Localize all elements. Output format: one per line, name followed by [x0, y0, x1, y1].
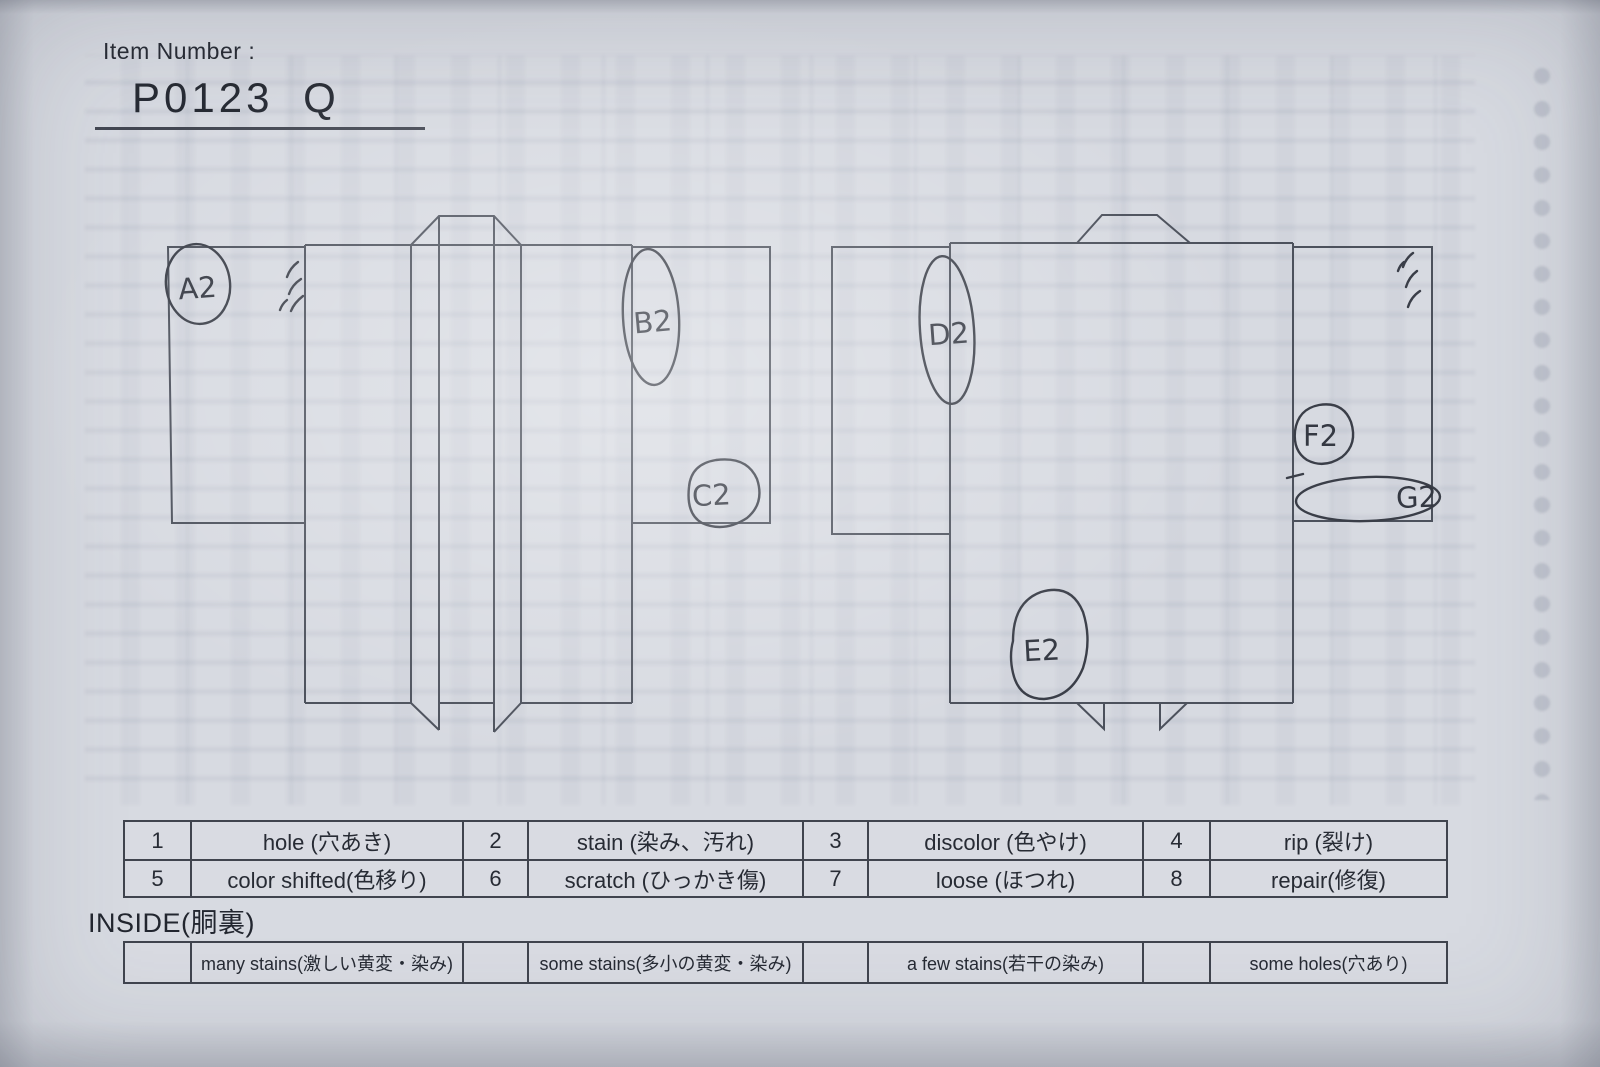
legend-label-cell: repair(修復) — [1209, 859, 1446, 896]
inside-check-cell — [802, 943, 867, 982]
inside-label-cell: some stains(多小の黄変・染み) — [527, 943, 802, 982]
annotation-c2-label: C2 — [691, 477, 731, 513]
legend-label-cell: color shifted(色移り) — [190, 859, 462, 896]
back-annotation-F2: F2 — [1287, 404, 1353, 478]
legend-label-cell: hole (穴あき) — [190, 822, 462, 859]
legend-code-cell: 2 — [462, 822, 527, 859]
annotation-g2-label: G2 — [1395, 480, 1437, 515]
legend-code-cell: 6 — [462, 859, 527, 896]
inside-section-heading: INSIDE(胴裏) — [88, 901, 255, 940]
legend-code-cell: 7 — [802, 859, 867, 896]
legend-code-cell: 1 — [125, 822, 190, 859]
defect-legend-table: 1 hole (穴あき) 2 stain (染み、汚れ) 3 discolor … — [123, 820, 1448, 898]
annotation-e2-label: E2 — [1022, 632, 1061, 668]
scanned-condition-sheet: Item Number : P0123 Q A2 B2 C2 — [0, 0, 1600, 1067]
legend-label-cell: rip (裂け) — [1209, 822, 1446, 859]
back-annotation-E2: E2 — [1011, 590, 1088, 699]
back-annotation-D2: D2 — [915, 254, 979, 405]
front-annotation-C2: C2 — [689, 459, 760, 527]
legend-label-cell: scratch (ひっかき傷) — [527, 859, 802, 896]
front-annotation-A2: A2 — [161, 240, 234, 327]
scratch-marks-front-left-sleeve — [280, 262, 303, 311]
legend-label-cell: loose (ほつれ) — [867, 859, 1142, 896]
inside-label-cell: many stains(激しい黄変・染み) — [190, 943, 462, 982]
annotation-b2-label: B2 — [632, 303, 673, 340]
front-annotation-B2: B2 — [619, 248, 682, 387]
inside-check-cell — [125, 943, 190, 982]
annotation-f2-label: F2 — [1303, 419, 1338, 453]
legend-label-cell: discolor (色やけ) — [867, 822, 1142, 859]
legend-code-cell: 5 — [125, 859, 190, 896]
scratch-marks-back-right-sleeve — [1398, 253, 1420, 307]
legend-code-cell: 8 — [1142, 859, 1209, 896]
annotation-d2-label: D2 — [927, 316, 970, 353]
inside-check-cell — [462, 943, 527, 982]
annotation-a2-label: A2 — [177, 270, 218, 307]
inside-condition-table: many stains(激しい黄変・染み) some stains(多小の黄変・… — [123, 941, 1448, 984]
inside-check-cell — [1142, 943, 1209, 982]
legend-code-cell: 3 — [802, 822, 867, 859]
inside-label-cell: some holes(穴あり) — [1209, 943, 1446, 982]
kimono-front-outline — [168, 216, 770, 732]
inside-label-cell: a few stains(若干の染み) — [867, 943, 1142, 982]
legend-code-cell: 4 — [1142, 822, 1209, 859]
back-annotation-G2: G2 — [1295, 475, 1440, 524]
legend-label-cell: stain (染み、汚れ) — [527, 822, 802, 859]
